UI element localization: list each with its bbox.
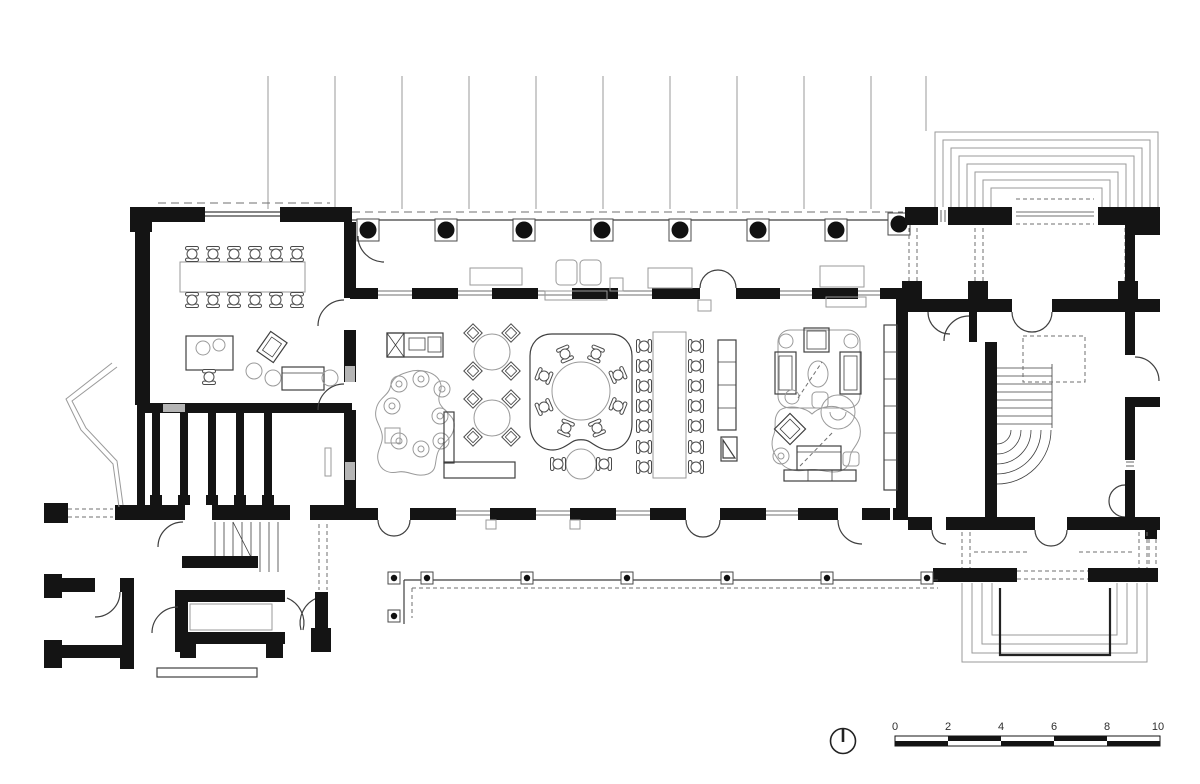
orientation-marker-icon [831,729,856,754]
scale-label-6: 6 [1051,721,1057,733]
stair-fan [997,430,1051,484]
column-icon [435,219,457,241]
floor-plan-canvas: 0 2 4 6 8 10 [0,0,1200,784]
southwest-rooms [44,524,331,677]
right-wing [902,207,1160,566]
scale-label-4: 4 [998,721,1004,733]
cabinet [387,333,443,357]
west-bay [66,363,123,507]
scale-bar-cells [895,736,1160,746]
terrace-furniture [470,260,866,311]
scale-label-0: 0 [892,721,898,733]
cafe-table-2 [464,390,520,446]
scale-label-8: 8 [1104,721,1110,733]
column-icon [669,219,691,241]
long-table-group [637,332,704,478]
column-icon [513,219,535,241]
south-porch [933,532,1158,662]
pergola-post-icon [621,572,633,584]
column-icon [825,219,847,241]
north-colonnade [352,212,910,241]
scale-bar: 0 2 4 6 8 10 [892,721,1164,746]
column-icon [357,219,379,241]
column-icon [747,219,769,241]
pergola-post-icon [521,572,533,584]
bar-counter [444,412,515,478]
pergola-post-icon [821,572,833,584]
organic-sofa [376,370,455,475]
pergola-post-icon [388,572,400,584]
cafe-table-1 [464,324,520,380]
pergola-post-icon [921,572,933,584]
office-furniture [186,331,338,390]
tall-shelf [718,340,737,461]
lounge-upper [775,328,861,408]
west-stair-block [44,363,352,572]
round-dining-group [530,334,632,479]
pergola-post-icon [388,610,400,622]
roof-lines [268,76,926,209]
conference-table-group [180,247,305,308]
floor-plan-drawing: 0 2 4 6 8 10 [0,0,1200,784]
pergola [388,572,938,624]
scale-label-10: 10 [1152,721,1164,733]
column-icon [591,219,613,241]
wall-shelving [884,325,897,490]
pergola-post-icon [721,572,733,584]
hall-furniture [376,324,897,490]
pergola-post-icon [421,572,433,584]
scale-label-2: 2 [945,721,951,733]
